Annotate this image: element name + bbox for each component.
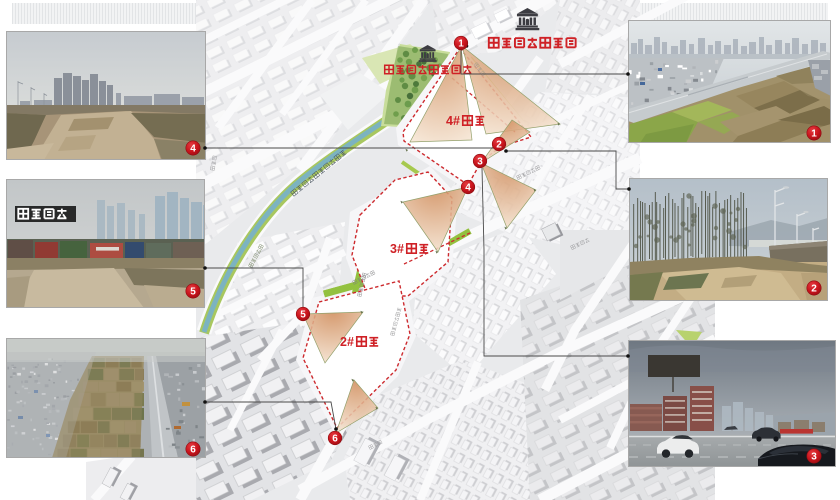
svg-text:1: 1: [811, 128, 817, 139]
svg-text:5: 5: [190, 286, 196, 297]
svg-text:6: 6: [190, 444, 196, 455]
svg-text:4#: 4#: [446, 114, 460, 128]
svg-text:3: 3: [811, 451, 817, 462]
svg-text:2: 2: [496, 139, 502, 150]
svg-text:1: 1: [458, 38, 464, 49]
svg-text:2#: 2#: [340, 335, 354, 349]
svg-text:5: 5: [300, 309, 306, 320]
svg-text:3#: 3#: [390, 242, 404, 256]
svg-text:4: 4: [465, 182, 471, 193]
svg-text:2: 2: [811, 283, 817, 294]
svg-text:3: 3: [477, 156, 483, 167]
svg-text:6: 6: [332, 433, 338, 444]
svg-text:4: 4: [190, 143, 196, 154]
